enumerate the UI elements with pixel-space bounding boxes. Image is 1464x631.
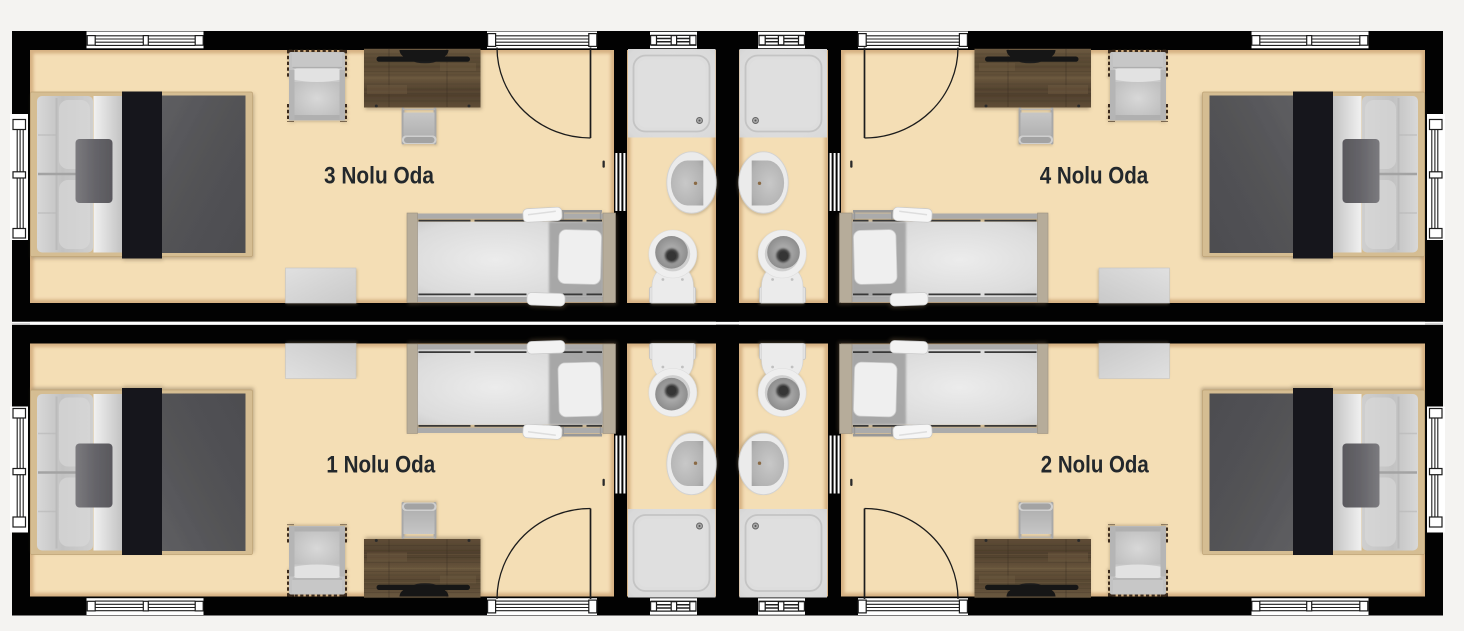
svg-text:4 Nolu Oda: 4 Nolu Oda [1040, 163, 1149, 190]
svg-text:1 Nolu Oda: 1 Nolu Oda [326, 452, 435, 479]
svg-text:3 Nolu Oda: 3 Nolu Oda [324, 163, 435, 190]
svg-text:2 Nolu Oda: 2 Nolu Oda [1041, 452, 1150, 479]
